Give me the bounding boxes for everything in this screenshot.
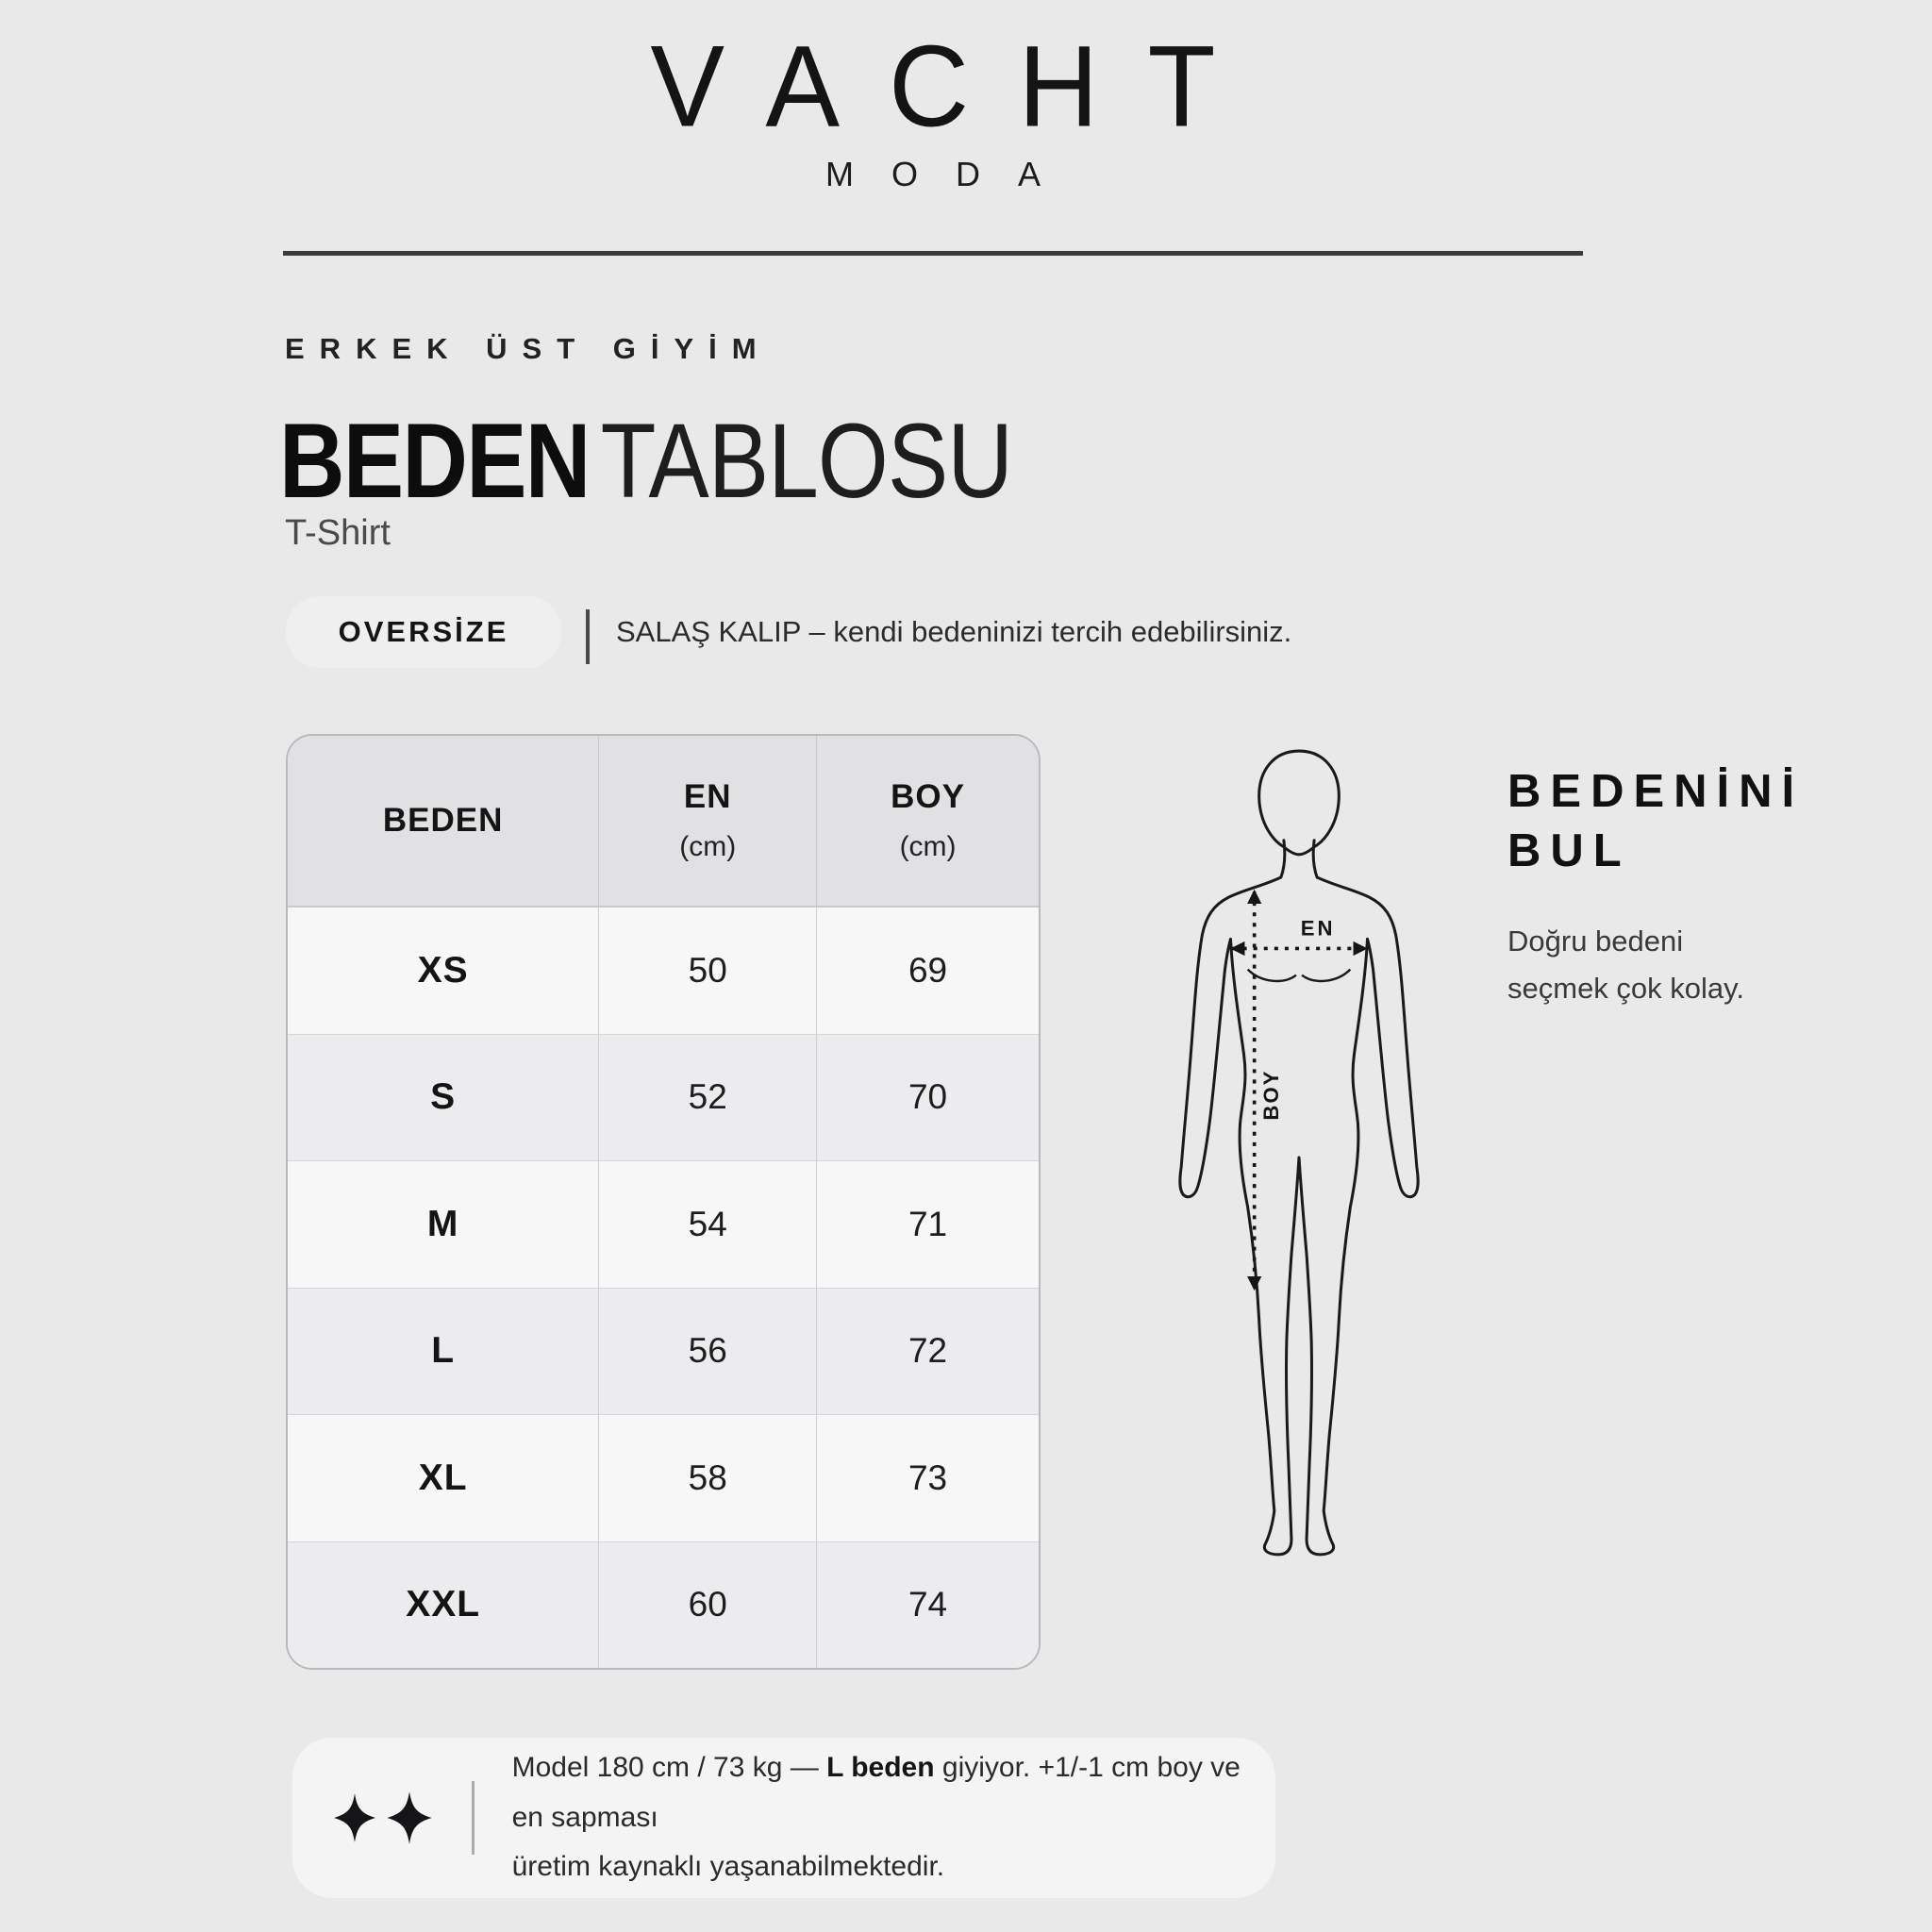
find-size-panel: BEDENİNİ BUL Doğru bedeni seçmek çok kol… <box>1507 762 1847 1012</box>
size-value: L <box>431 1330 455 1372</box>
header-divider <box>283 251 1583 256</box>
model-info-card: Model 180 cm / 73 kg — L beden giyiyor. … <box>292 1738 1275 1898</box>
brand-logo: VACHT <box>283 24 1583 151</box>
sparkles <box>334 1791 432 1844</box>
column-label-boy: BOY <box>891 778 965 816</box>
en-value: 50 <box>689 951 727 991</box>
find-size-heading-line2: BUL <box>1507 822 1847 881</box>
boy-value: 69 <box>908 951 947 991</box>
body-measurement-diagram: EN BOY <box>1153 741 1445 1577</box>
column-unit-en: (cm) <box>679 831 736 863</box>
find-size-description: Doğru bedeni seçmek çok kolay. <box>1507 918 1847 1011</box>
find-size-desc-line2: seçmek çok kolay. <box>1507 965 1847 1012</box>
column-unit-boy: (cm) <box>900 831 957 863</box>
table-row-m: M 54 71 <box>288 1161 1039 1289</box>
sparkle-icon <box>334 1793 375 1842</box>
header-cell-boy: BOY (cm) <box>817 736 1039 906</box>
page-title: BEDENTABLOSU <box>279 400 1012 522</box>
category-label: ERKEK ÜST GİYİM <box>285 332 772 366</box>
en-value: 52 <box>689 1077 727 1117</box>
find-size-heading: BEDENİNİ BUL <box>1507 762 1847 880</box>
table-row-xs: XS 50 69 <box>288 908 1039 1035</box>
size-table: BEDEN EN (cm) BOY (cm) XS 50 69 S 52 70 … <box>286 734 1041 1670</box>
model-info-text: Model 180 cm / 73 kg — L beden giyiyor. … <box>512 1743 1275 1892</box>
find-size-heading-line1: BEDENİNİ <box>1507 762 1847 822</box>
footer-divider <box>472 1781 475 1855</box>
model-info-line2: üretim kaynaklı yaşanabilmektedir. <box>512 1842 1275 1892</box>
page-title-bold: BEDEN <box>279 402 590 520</box>
model-info-line1: Model 180 cm / 73 kg — L beden giyiyor. … <box>512 1743 1275 1842</box>
en-arrow-label: EN <box>1301 916 1336 940</box>
size-table-header: BEDEN EN (cm) BOY (cm) <box>288 736 1039 908</box>
size-value: XL <box>419 1457 468 1499</box>
brand-header: VACHT MODA <box>283 26 1583 194</box>
en-value: 58 <box>689 1458 727 1498</box>
product-name: T-Shirt <box>285 513 391 554</box>
en-value: 54 <box>689 1205 727 1244</box>
size-value: XS <box>418 950 469 991</box>
boy-value: 71 <box>908 1205 947 1244</box>
boy-arrow-label: BOY <box>1259 1070 1283 1121</box>
header-cell-size: BEDEN <box>288 736 599 906</box>
oversize-badge: OVERSİZE <box>286 596 561 668</box>
boy-value: 70 <box>908 1077 947 1117</box>
fit-divider <box>586 609 590 664</box>
fit-description: SALAŞ KALIP – kendi bedeninizi tercih ed… <box>616 596 1291 668</box>
brand-subtitle: MODA <box>283 155 1583 194</box>
size-value: XXL <box>406 1584 480 1625</box>
page-title-light: TABLOSU <box>601 402 1012 520</box>
size-value: S <box>430 1076 456 1118</box>
size-value: M <box>427 1204 459 1245</box>
table-row-s: S 52 70 <box>288 1035 1039 1162</box>
column-label-en: EN <box>684 778 732 816</box>
model-size-bold: L beden <box>826 1752 934 1783</box>
body-outline-icon: EN BOY <box>1153 741 1445 1577</box>
table-row-xl: XL 58 73 <box>288 1415 1039 1542</box>
boy-value: 72 <box>908 1331 947 1371</box>
en-value: 56 <box>689 1331 727 1371</box>
table-row-xxl: XXL 60 74 <box>288 1542 1039 1669</box>
find-size-desc-line1: Doğru bedeni <box>1507 918 1847 965</box>
boy-value: 74 <box>908 1585 947 1624</box>
table-row-l: L 56 72 <box>288 1289 1039 1416</box>
header-cell-en: EN (cm) <box>599 736 817 906</box>
column-label-size: BEDEN <box>383 802 504 840</box>
en-value: 60 <box>689 1585 727 1624</box>
sparkle-icon <box>387 1791 432 1844</box>
boy-value: 73 <box>908 1458 947 1498</box>
